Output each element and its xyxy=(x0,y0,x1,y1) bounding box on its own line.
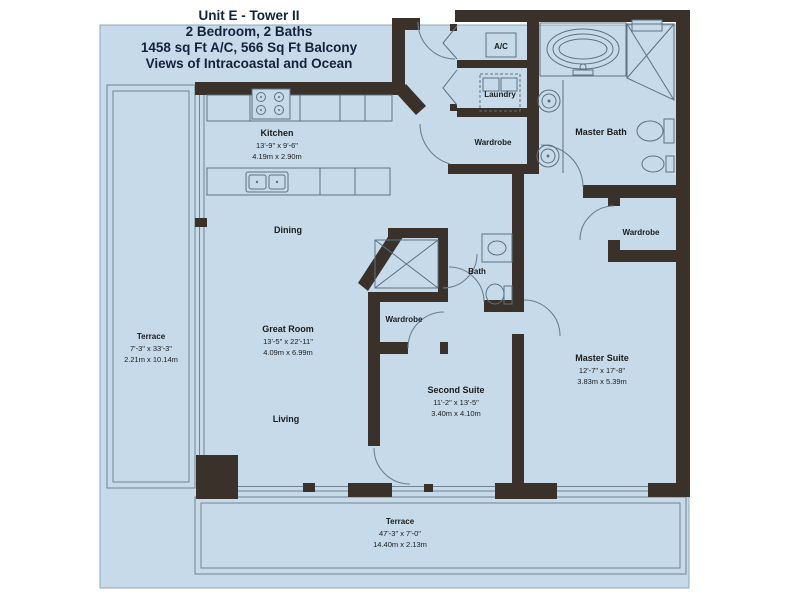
title-line-2: 2 Bedroom, 2 Baths xyxy=(186,24,313,39)
kitchen-size-ft: 13'-9" x 9'-6" xyxy=(256,141,298,150)
second-suite-size-ft: 11'-2" x 13'-5" xyxy=(433,398,479,407)
side-terrace-size-ft: 7'-3" x 33'-3" xyxy=(130,344,172,353)
laundry-label: Laundry xyxy=(484,90,516,99)
master-suite-size-ft: 12'-7" x 17'-8" xyxy=(579,366,625,375)
second-suite-size-m: 3.40m x 4.10m xyxy=(431,409,481,418)
stove-icon xyxy=(252,89,290,119)
master-wardrobe-label: Wardrobe xyxy=(622,228,660,237)
floor-plan-page: Unit E - Tower II 2 Bedroom, 2 Baths 145… xyxy=(0,0,800,600)
kitchen-label: Kitchen xyxy=(260,128,293,138)
bottom-terrace-size-ft: 47'-3" x 7'-0" xyxy=(379,529,421,538)
master-suite-size-m: 3.83m x 5.39m xyxy=(577,377,627,386)
title-line-3: 1458 sq Ft A/C, 566 Sq Ft Balcony xyxy=(141,40,358,55)
bath-label: Bath xyxy=(468,267,486,276)
second-suite-label: Second Suite xyxy=(427,385,484,395)
bottom-terrace-label: Terrace xyxy=(386,517,415,526)
master-bath-label: Master Bath xyxy=(575,127,627,137)
plan-background xyxy=(100,25,689,588)
side-terrace-label: Terrace xyxy=(137,332,166,341)
plan-title: Unit E - Tower II 2 Bedroom, 2 Baths 145… xyxy=(141,8,358,71)
floor-plan-drawing: Unit E - Tower II 2 Bedroom, 2 Baths 145… xyxy=(0,0,800,600)
mullion xyxy=(424,484,433,492)
ac-label: A/C xyxy=(494,42,508,51)
bottom-terrace-size-m: 14.40m x 2.13m xyxy=(373,540,427,549)
side-terrace-size-m: 2.21m x 10.14m xyxy=(124,355,178,364)
wall-niche xyxy=(632,20,662,31)
title-line-4: Views of Intracoastal and Ocean xyxy=(146,56,353,71)
kitchen-size-m: 4.19m x 2.90m xyxy=(252,152,302,161)
mullion xyxy=(195,218,207,227)
master-suite-label: Master Suite xyxy=(575,353,629,363)
living-label: Living xyxy=(273,414,300,424)
great-room-size-ft: 13'-5" x 22'-11" xyxy=(263,337,313,346)
second-wardrobe-label: Wardrobe xyxy=(385,315,423,324)
mullion xyxy=(303,483,315,492)
dining-label: Dining xyxy=(274,225,302,235)
great-room-label: Great Room xyxy=(262,324,314,334)
title-line-1: Unit E - Tower II xyxy=(199,8,300,23)
entry-wardrobe-label: Wardrobe xyxy=(474,138,512,147)
great-room-size-m: 4.09m x 6.99m xyxy=(263,348,313,357)
